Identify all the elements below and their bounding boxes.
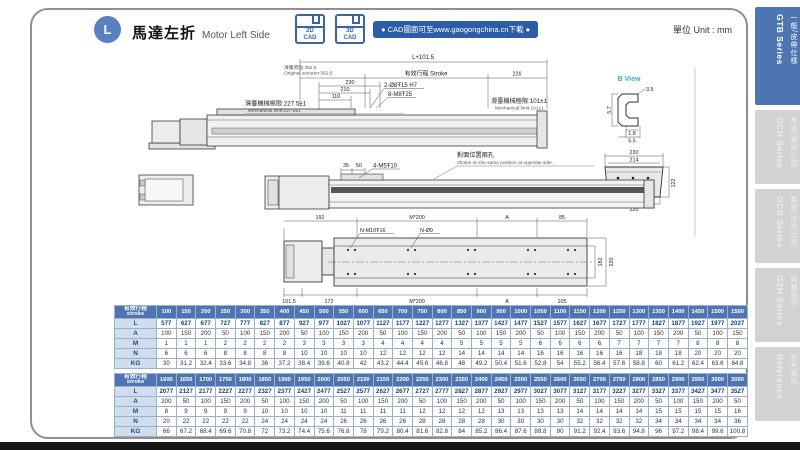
value-cell: 16 xyxy=(727,407,747,417)
stroke-column-header: 2050 xyxy=(334,374,354,387)
value-cell: 200 xyxy=(235,397,255,407)
stroke-column-header: 900 xyxy=(472,306,492,319)
value-cell: 5 xyxy=(472,339,492,349)
value-cell: 3 xyxy=(353,339,373,349)
value-cell: 8 xyxy=(708,339,728,349)
limit-left-en: Mechanical limit:227.5±1 xyxy=(248,108,301,114)
badge-letter: L xyxy=(104,22,112,37)
value-cell: 200 xyxy=(393,397,413,407)
stroke-column-header: 1950 xyxy=(294,374,314,387)
stroke-column-header: 2300 xyxy=(432,374,452,387)
value-cell: 877 xyxy=(275,319,295,329)
table-row-A: A200501001502005010015020050100150200501… xyxy=(115,397,748,407)
stroke-column-header: 250 xyxy=(216,306,236,319)
value-cell: 66 xyxy=(157,427,177,437)
tab-label-en: Reference xyxy=(773,354,787,421)
value-cell: 8 xyxy=(235,349,255,359)
value-cell: 2 xyxy=(255,339,275,349)
value-cell: 88.8 xyxy=(531,427,551,437)
value-cell: 97.2 xyxy=(668,427,688,437)
value-cell: 16 xyxy=(590,349,610,359)
table-row-L: L207721272177222722772327237724272477252… xyxy=(115,387,748,397)
value-cell: 10 xyxy=(294,407,314,417)
table-row-A: A100150200501001502005010015020050100150… xyxy=(115,329,748,339)
value-cell: 36 xyxy=(727,417,747,427)
stroke-column-header: 1550 xyxy=(727,306,747,319)
value-cell: 977 xyxy=(314,319,334,329)
b-view-dim-1-8: 1.8 xyxy=(628,131,636,137)
value-cell: 24 xyxy=(294,417,314,427)
stroke-column-header: 450 xyxy=(294,306,314,319)
value-cell: 7 xyxy=(649,339,669,349)
value-cell: 52.8 xyxy=(531,359,551,369)
value-cell: 1877 xyxy=(668,319,688,329)
value-cell: 30 xyxy=(511,417,531,427)
value-cell: 2027 xyxy=(727,319,747,329)
tab-label-zh: 無塵/皮帶仕樣 xyxy=(787,196,800,263)
tab-reference[interactable]: 參考資料 Reference xyxy=(755,347,800,421)
value-cell: 16 xyxy=(570,349,590,359)
value-cell: 1627 xyxy=(570,319,590,329)
value-cell: 1677 xyxy=(590,319,610,329)
stroke-table-1: 有效行程stroke100150200250300350400450500550… xyxy=(114,305,748,369)
middle-side-view xyxy=(139,174,654,209)
tab-gzh-series[interactable]: 齒輪齒條 GZH Series xyxy=(755,268,800,342)
plan-hole-callout-thru: N-Ø9 xyxy=(420,228,433,234)
value-cell: 9 xyxy=(176,407,196,417)
table-row-M: M111222233334444555566667777888 xyxy=(115,339,748,349)
value-cell: 14 xyxy=(570,407,590,417)
value-cell: 2727 xyxy=(412,387,432,397)
value-cell: 14 xyxy=(511,349,531,359)
stroke-column-header: 100 xyxy=(157,306,177,319)
value-cell: 75.6 xyxy=(314,427,334,437)
value-cell: 4 xyxy=(432,339,452,349)
value-cell: 150 xyxy=(373,397,393,407)
value-cell: 32.4 xyxy=(196,359,216,369)
value-cell: 39.6 xyxy=(314,359,334,369)
value-cell: 64.8 xyxy=(727,359,747,369)
value-cell: 727 xyxy=(216,319,236,329)
stroke-column-header: 550 xyxy=(334,306,354,319)
value-cell: 200 xyxy=(157,397,177,407)
stroke-column-header: 2000 xyxy=(314,374,334,387)
stroke-column-header: 2200 xyxy=(393,374,413,387)
value-cell: 100 xyxy=(314,329,334,339)
value-cell: 28 xyxy=(412,417,432,427)
value-cell: 12 xyxy=(373,349,393,359)
dim-182: 182 xyxy=(598,258,604,267)
b-view-dim-3-5: 3.5 xyxy=(646,87,654,93)
value-cell: 76.8 xyxy=(334,427,354,437)
cad-2d-label: 2DCAD xyxy=(297,28,323,41)
value-cell: 70.8 xyxy=(235,427,255,437)
b-view-dim-5-5: 5.5 xyxy=(628,139,636,145)
value-cell: 32 xyxy=(629,417,649,427)
stroke-column-header: 1600 xyxy=(157,374,177,387)
value-cell: 18 xyxy=(649,349,669,359)
value-cell: 8 xyxy=(216,349,236,359)
value-cell: 577 xyxy=(157,319,177,329)
dim-85: 85 xyxy=(559,215,565,221)
stroke-column-header: 2700 xyxy=(590,374,610,387)
stroke-column-header: 2350 xyxy=(452,374,472,387)
value-cell: 98.4 xyxy=(688,427,708,437)
value-cell: 15 xyxy=(708,407,728,417)
content-panel: L 馬達左折Motor Left Side 2DCAD 3DCAD ● CAD圖… xyxy=(30,8,748,439)
value-cell: 4 xyxy=(373,339,393,349)
value-cell: 15 xyxy=(688,407,708,417)
value-cell: 55.2 xyxy=(570,359,590,369)
stroke-column-header: 2400 xyxy=(472,374,492,387)
value-cell: 150 xyxy=(334,329,354,339)
value-cell: 100 xyxy=(235,329,255,339)
value-cell: 100 xyxy=(472,329,492,339)
value-cell: 34 xyxy=(708,417,728,427)
stroke-column-header: 750 xyxy=(412,306,432,319)
value-cell: 3027 xyxy=(531,387,551,397)
value-cell: 50.4 xyxy=(491,359,511,369)
value-cell: 14 xyxy=(472,349,492,359)
table-row-L: L577627677727777827877927977102710771127… xyxy=(115,319,748,329)
value-cell: 6 xyxy=(550,339,570,349)
row-label: L xyxy=(115,319,157,329)
value-cell: 5 xyxy=(452,339,472,349)
value-cell: 3077 xyxy=(550,387,570,397)
value-cell: 1227 xyxy=(412,319,432,329)
value-cell: 2327 xyxy=(255,387,275,397)
value-cell: 150 xyxy=(294,397,314,407)
value-cell: 79.2 xyxy=(373,427,393,437)
stroke-column-header: 2850 xyxy=(649,374,669,387)
stroke-column-header: 700 xyxy=(393,306,413,319)
value-cell: 3327 xyxy=(649,387,669,397)
stroke-column-header: 1650 xyxy=(176,374,196,387)
stroke-column-header: 950 xyxy=(491,306,511,319)
value-cell: 22 xyxy=(216,417,236,427)
hole-callout-dowel: 2-Ø8Ŧ15 H7 xyxy=(384,83,418,89)
row-label: A xyxy=(115,397,157,407)
value-cell: 6 xyxy=(570,339,590,349)
value-cell: 10 xyxy=(314,349,334,359)
value-cell: 1827 xyxy=(649,319,669,329)
value-cell: 2227 xyxy=(216,387,236,397)
value-cell: 24 xyxy=(255,417,275,427)
stroke-column-header: 650 xyxy=(373,306,393,319)
value-cell: 200 xyxy=(432,329,452,339)
stroke-column-header: 1300 xyxy=(629,306,649,319)
value-cell: 9 xyxy=(216,407,236,417)
stroke-corner-cell: 有效行程stroke xyxy=(115,374,157,387)
value-cell: 26 xyxy=(393,417,413,427)
value-cell: 96 xyxy=(649,427,669,437)
value-cell: 32 xyxy=(590,417,610,427)
value-cell: 2077 xyxy=(157,387,177,397)
value-cell: 100 xyxy=(275,397,295,407)
dim-50: 50 xyxy=(356,163,362,169)
stroke-column-header: 1500 xyxy=(708,306,728,319)
row-label: A xyxy=(115,329,157,339)
stroke-column-header: 2100 xyxy=(353,374,373,387)
value-cell: 60 xyxy=(649,359,669,369)
stroke-column-header: 3000 xyxy=(708,374,728,387)
value-cell: 20 xyxy=(727,349,747,359)
tab-gch-series[interactable]: 無塵/螺桿仕樣 GCH Series xyxy=(755,110,800,184)
value-cell: 1727 xyxy=(609,319,629,329)
value-cell: 85.2 xyxy=(472,427,492,437)
value-cell: 11 xyxy=(334,407,354,417)
value-cell: 100 xyxy=(511,397,531,407)
value-cell: 2 xyxy=(235,339,255,349)
value-cell: 50 xyxy=(255,397,275,407)
value-cell: 54 xyxy=(550,359,570,369)
stroke-column-header: 500 xyxy=(314,306,334,319)
table-row-N: N666888810101010121212121414141416161616… xyxy=(115,349,748,359)
value-cell: 2927 xyxy=(491,387,511,397)
value-cell: 6 xyxy=(531,339,551,349)
value-cell: 2827 xyxy=(452,387,472,397)
value-cell: 927 xyxy=(294,319,314,329)
value-cell: 200 xyxy=(275,329,295,339)
limit-left-zh: 滑臺機械極限:227.5±1 xyxy=(245,100,307,108)
stroke-column-header: 850 xyxy=(452,306,472,319)
value-cell: 22 xyxy=(176,417,196,427)
value-cell: 3 xyxy=(294,339,314,349)
stroke-column-header: 1250 xyxy=(609,306,629,319)
value-cell: 3477 xyxy=(708,387,728,397)
stroke-tables: 有效行程stroke100150200250300350400450500550… xyxy=(114,305,748,437)
table-row-N: N202222222224242424262626262828282830303… xyxy=(115,417,748,427)
row-label: L xyxy=(115,387,157,397)
side-view-labels: 35 50 4-M5Ŧ10 對面位置兩孔 2holes on the same … xyxy=(343,151,553,170)
value-cell: 50 xyxy=(491,397,511,407)
value-cell: 91.2 xyxy=(570,427,590,437)
value-cell: 26 xyxy=(353,417,373,427)
section-dim-230: 230 xyxy=(630,150,639,156)
top-side-view xyxy=(149,109,547,149)
tab-label-en: GTB Series xyxy=(773,14,787,105)
tab-label-zh: 齒輪齒條 xyxy=(787,275,800,342)
value-cell: 14 xyxy=(491,349,511,359)
stroke-column-header: 1700 xyxy=(196,374,216,387)
plan-view xyxy=(284,238,592,286)
section-dim-214: 214 xyxy=(630,158,639,164)
value-cell: 200 xyxy=(590,329,610,339)
value-cell: 44.4 xyxy=(393,359,413,369)
stroke-column-header: 300 xyxy=(235,306,255,319)
value-cell: 150 xyxy=(255,329,275,339)
stroke-column-header: 350 xyxy=(255,306,275,319)
value-cell: 34 xyxy=(649,417,669,427)
value-cell: 90 xyxy=(550,427,570,437)
value-cell: 92.4 xyxy=(590,427,610,437)
value-cell: 200 xyxy=(629,397,649,407)
cad-3d-button[interactable]: 3DCAD xyxy=(335,14,365,44)
value-cell: 100 xyxy=(668,397,688,407)
value-cell: 50 xyxy=(570,397,590,407)
value-cell: 12 xyxy=(412,407,432,417)
value-cell: 100 xyxy=(353,397,373,407)
value-cell: 200 xyxy=(196,329,216,339)
technical-drawing: L+101.5 滑臺原點:352.5 Original actuator:352… xyxy=(32,44,750,305)
value-cell: 20 xyxy=(708,349,728,359)
hole-callout-tap: 8-M8Ŧ25 xyxy=(388,92,413,98)
value-cell: 2577 xyxy=(353,387,373,397)
dim-220: 220 xyxy=(609,258,615,267)
value-cell: 100 xyxy=(708,329,728,339)
value-cell: 87.6 xyxy=(511,427,531,437)
value-cell: 81.6 xyxy=(412,427,432,437)
dim-192: 192 xyxy=(316,215,325,221)
value-cell: 22 xyxy=(235,417,255,427)
value-cell: 1477 xyxy=(511,319,531,329)
stroke-header-row: 有效行程stroke160016501700175018001850190019… xyxy=(115,374,748,387)
value-cell: 14 xyxy=(609,407,629,417)
b-view-title: B View xyxy=(618,76,641,83)
value-cell: 2127 xyxy=(176,387,196,397)
value-cell: 1127 xyxy=(373,319,393,329)
value-cell: 1 xyxy=(157,339,177,349)
value-cell: 1927 xyxy=(688,319,708,329)
value-cell: 1277 xyxy=(432,319,452,329)
limit-right-zh: 滑臺機械極限:101±1 xyxy=(491,97,548,105)
value-cell: 33.6 xyxy=(216,359,236,369)
value-cell: 150 xyxy=(727,329,747,339)
title-en: Motor Left Side xyxy=(202,30,270,41)
value-cell: 150 xyxy=(216,397,236,407)
tab-gcb-series[interactable]: 無塵/皮帶仕樣 GCB Series xyxy=(755,189,800,263)
value-cell: 150 xyxy=(531,397,551,407)
value-cell: 10 xyxy=(314,407,334,417)
value-cell: 100 xyxy=(550,329,570,339)
value-cell: 5 xyxy=(511,339,531,349)
value-cell: 50 xyxy=(727,397,747,407)
value-cell: 1 xyxy=(196,339,216,349)
value-cell: 94.8 xyxy=(629,427,649,437)
value-cell: 93.6 xyxy=(609,427,629,437)
value-cell: 6 xyxy=(176,349,196,359)
top-view-labels: L+101.5 滑臺原點:352.5 Original actuator:352… xyxy=(245,55,548,114)
title-zh: 馬達左折 xyxy=(132,25,196,42)
value-cell: 14 xyxy=(590,407,610,417)
value-cell: 12 xyxy=(393,349,413,359)
value-cell: 18 xyxy=(629,349,649,359)
cad-download-banner[interactable]: ● CAD圖面可至www.gaogongchina.cn下載 ● xyxy=(373,21,538,38)
value-cell: 13 xyxy=(491,407,511,417)
opposite-note-zh: 對面位置兩孔 xyxy=(457,151,494,159)
tab-label-zh: 無塵/螺桿仕樣 xyxy=(787,117,800,184)
row-label: N xyxy=(115,417,157,427)
value-cell: 2427 xyxy=(294,387,314,397)
value-cell: 12 xyxy=(432,349,452,359)
value-cell: 18 xyxy=(668,349,688,359)
dim-m200-top: M*200 xyxy=(409,215,425,221)
value-cell: 6 xyxy=(157,349,177,359)
stroke-column-header: 1100 xyxy=(550,306,570,319)
stroke-column-header: 1850 xyxy=(255,374,275,387)
value-cell: 677 xyxy=(196,319,216,329)
value-cell: 26 xyxy=(334,417,354,427)
floppy-disk-icon xyxy=(352,16,360,24)
value-cell: 69.6 xyxy=(216,427,236,437)
value-cell: 15 xyxy=(649,407,669,417)
side-hole-callout: 4-M5Ŧ10 xyxy=(373,164,398,170)
stroke-column-header: 2900 xyxy=(668,374,688,387)
value-cell: 50 xyxy=(688,329,708,339)
value-cell: 10 xyxy=(275,407,295,417)
value-cell: 30 xyxy=(531,417,551,427)
value-cell: 12 xyxy=(472,407,492,417)
stroke-column-header: 1200 xyxy=(590,306,610,319)
table-row-M: M899991010101011111111121212121313131314… xyxy=(115,407,748,417)
value-cell: 12 xyxy=(432,407,452,417)
value-cell: 11 xyxy=(353,407,373,417)
origin-label-en: Original actuator:352.5 xyxy=(284,71,333,77)
value-cell: 50 xyxy=(412,397,432,407)
value-cell: 627 xyxy=(176,319,196,329)
tab-gtb-series[interactable]: 一般/皮帶仕樣 GTB Series xyxy=(755,7,800,105)
value-cell: 34.8 xyxy=(235,359,255,369)
value-cell: 30 xyxy=(550,417,570,427)
cad-2d-button[interactable]: 2DCAD xyxy=(295,14,325,44)
stroke-column-header: 2750 xyxy=(609,374,629,387)
value-cell: 777 xyxy=(235,319,255,329)
value-cell: 13 xyxy=(550,407,570,417)
value-cell: 2 xyxy=(216,339,236,349)
tab-label-en: GCH Series xyxy=(773,117,787,184)
series-tab-bar: 一般/皮帶仕樣 GTB Series 無塵/螺桿仕樣 GCH Series 無塵… xyxy=(755,7,800,426)
value-cell: 30 xyxy=(157,359,177,369)
value-cell: 2777 xyxy=(432,387,452,397)
value-cell: 200 xyxy=(550,397,570,407)
stroke-column-header: 3050 xyxy=(727,374,747,387)
value-cell: 1 xyxy=(176,339,196,349)
stroke-column-header: 2950 xyxy=(688,374,708,387)
value-cell: 150 xyxy=(176,329,196,339)
value-cell: 100.8 xyxy=(727,427,747,437)
value-cell: 2977 xyxy=(511,387,531,397)
stroke-column-header: 2450 xyxy=(491,374,511,387)
value-cell: 73.2 xyxy=(275,427,295,437)
value-cell: 150 xyxy=(491,329,511,339)
row-label: M xyxy=(115,339,157,349)
dim-110: 110 xyxy=(332,94,341,100)
value-cell: 12 xyxy=(452,407,472,417)
value-cell: 20 xyxy=(157,417,177,427)
value-cell: 100 xyxy=(157,329,177,339)
value-cell: 9 xyxy=(196,407,216,417)
value-cell: 1427 xyxy=(491,319,511,329)
section-badge: L xyxy=(94,16,121,43)
value-cell: 62.4 xyxy=(688,359,708,369)
value-cell: 51.6 xyxy=(511,359,531,369)
page-footer-bar xyxy=(0,442,800,450)
stroke-column-header: 150 xyxy=(176,306,196,319)
value-cell: 36 xyxy=(255,359,275,369)
value-cell: 100 xyxy=(590,397,610,407)
stroke-column-header: 2150 xyxy=(373,374,393,387)
value-cell: 30 xyxy=(491,417,511,427)
unit-label: 單位 Unit : mm xyxy=(673,23,732,36)
stroke-column-header: 1350 xyxy=(649,306,669,319)
value-cell: 4 xyxy=(393,339,413,349)
value-cell: 50 xyxy=(373,329,393,339)
value-cell: 10 xyxy=(294,349,314,359)
b-view-detail: B View 3.5 5.7 1.8 5.5 xyxy=(607,76,654,145)
value-cell: 8 xyxy=(275,349,295,359)
value-cell: 68.4 xyxy=(196,427,216,437)
value-cell: 99.6 xyxy=(708,427,728,437)
